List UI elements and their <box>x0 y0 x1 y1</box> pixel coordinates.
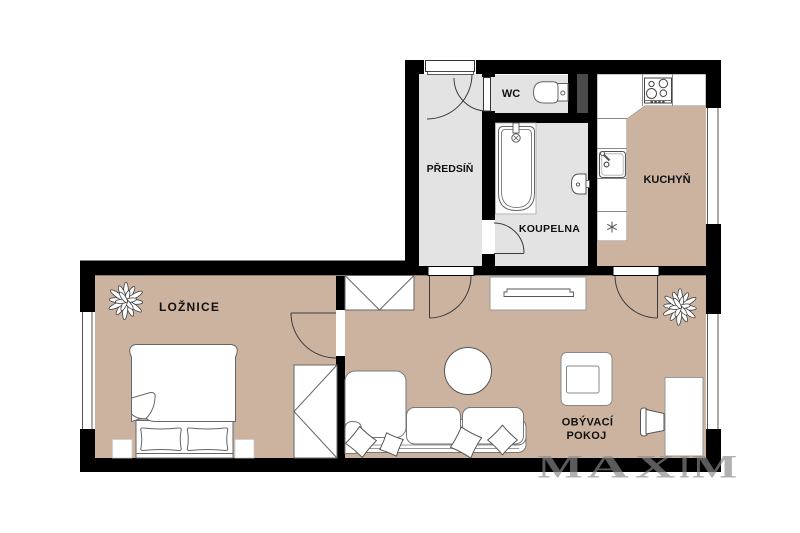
svg-text:I: I <box>679 448 690 485</box>
svg-text:A: A <box>587 449 629 485</box>
svg-text:KUCHYŇ: KUCHYŇ <box>643 173 690 186</box>
svg-text:POKOJ: POKOJ <box>566 430 606 442</box>
svg-text:KOUPELNA: KOUPELNA <box>519 223 580 235</box>
svg-text:WC: WC <box>502 88 520 100</box>
svg-text:M: M <box>538 448 583 485</box>
svg-text:LOŽNICE: LOŽNICE <box>159 299 220 314</box>
svg-text:M: M <box>692 448 737 485</box>
svg-text:PŘEDSÍŇ: PŘEDSÍŇ <box>427 162 474 175</box>
svg-text:OBÝVACÍ: OBÝVACÍ <box>562 416 614 429</box>
svg-text:X: X <box>635 448 676 485</box>
